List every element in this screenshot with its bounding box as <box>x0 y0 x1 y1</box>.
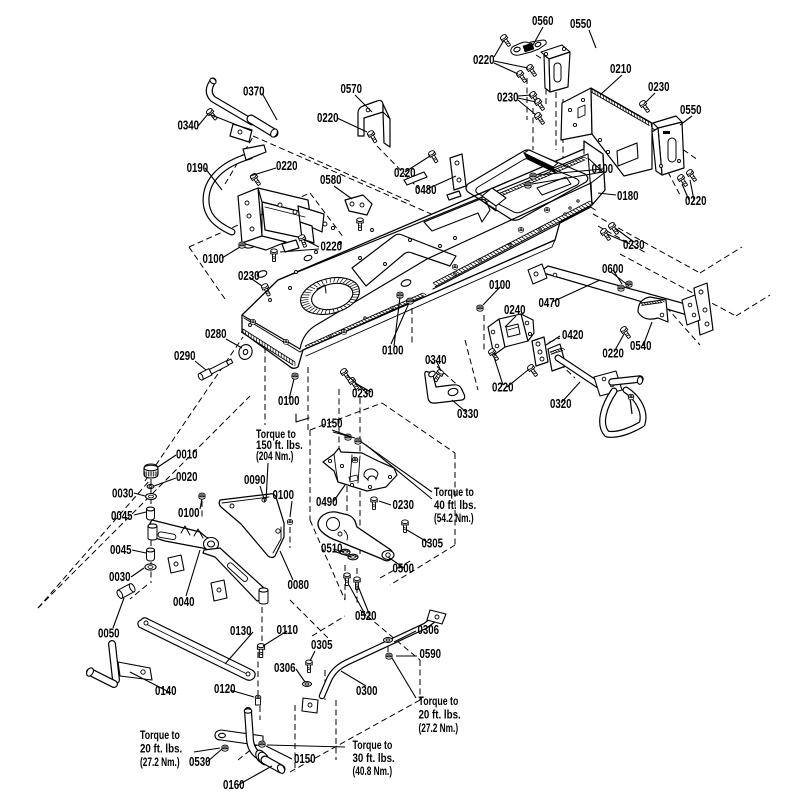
svg-text:0290: 0290 <box>174 348 196 363</box>
svg-text:30 ft. lbs.: 30 ft. lbs. <box>353 751 395 765</box>
svg-text:0220: 0220 <box>473 52 495 67</box>
svg-text:0150: 0150 <box>294 751 316 766</box>
svg-text:0080: 0080 <box>288 577 310 592</box>
svg-text:0306: 0306 <box>418 622 440 637</box>
svg-text:0330: 0330 <box>457 406 479 421</box>
svg-text:0510: 0510 <box>321 541 343 556</box>
svg-text:Torque to: Torque to <box>353 738 393 752</box>
svg-text:0300: 0300 <box>356 683 378 698</box>
svg-text:(204 Nm.): (204 Nm.) <box>256 449 293 463</box>
svg-text:(54.2 Nm.): (54.2 Nm.) <box>434 511 474 525</box>
svg-text:0340: 0340 <box>425 352 447 367</box>
svg-text:0220: 0220 <box>602 346 624 361</box>
svg-text:0520: 0520 <box>355 608 377 623</box>
svg-text:0100: 0100 <box>203 251 225 266</box>
svg-text:0230: 0230 <box>238 268 260 283</box>
svg-text:0020: 0020 <box>176 469 198 484</box>
svg-text:0100: 0100 <box>178 505 200 520</box>
svg-text:(27.2 Nm.): (27.2 Nm.) <box>419 721 459 735</box>
svg-text:0550: 0550 <box>680 102 702 117</box>
svg-text:0230: 0230 <box>648 79 670 94</box>
svg-text:0010: 0010 <box>176 447 198 462</box>
svg-text:0050: 0050 <box>98 626 120 641</box>
svg-text:0100: 0100 <box>592 161 614 176</box>
svg-text:0220: 0220 <box>276 158 298 173</box>
svg-text:0100: 0100 <box>489 277 511 292</box>
svg-text:Torque to: Torque to <box>434 485 474 499</box>
svg-text:0160: 0160 <box>223 777 245 792</box>
svg-text:0230: 0230 <box>393 497 415 512</box>
svg-text:0230: 0230 <box>352 386 374 401</box>
svg-text:0220: 0220 <box>321 239 343 254</box>
svg-text:0480: 0480 <box>415 182 437 197</box>
svg-text:Torque to: Torque to <box>419 694 459 708</box>
svg-text:0280: 0280 <box>205 326 227 341</box>
svg-text:0540: 0540 <box>630 338 652 353</box>
svg-text:20 ft. lbs.: 20 ft. lbs. <box>419 708 461 722</box>
svg-text:0110: 0110 <box>277 622 299 637</box>
svg-text:0420: 0420 <box>562 327 584 342</box>
svg-text:0100: 0100 <box>278 393 300 408</box>
svg-text:0340: 0340 <box>178 118 200 133</box>
svg-text:0180: 0180 <box>617 188 639 203</box>
svg-text:0306: 0306 <box>274 660 296 675</box>
svg-text:0240: 0240 <box>504 302 526 317</box>
svg-text:0580: 0580 <box>320 172 342 187</box>
svg-text:40 ft. lbs.: 40 ft. lbs. <box>434 498 476 512</box>
svg-text:0320: 0320 <box>550 396 572 411</box>
svg-text:0500: 0500 <box>393 561 415 576</box>
svg-text:0100: 0100 <box>382 343 404 358</box>
svg-text:0045: 0045 <box>111 508 133 523</box>
svg-text:0040: 0040 <box>173 594 195 609</box>
svg-text:0230: 0230 <box>497 90 519 105</box>
svg-text:0150: 0150 <box>321 416 343 431</box>
svg-text:0045: 0045 <box>110 542 132 557</box>
svg-text:0470: 0470 <box>539 295 561 310</box>
svg-text:0230: 0230 <box>623 237 645 252</box>
svg-text:(40.8 Nm.): (40.8 Nm.) <box>353 764 393 778</box>
svg-text:0305: 0305 <box>422 536 444 551</box>
svg-text:0570: 0570 <box>341 81 363 96</box>
svg-text:0030: 0030 <box>112 486 134 501</box>
svg-text:0590: 0590 <box>420 646 442 661</box>
svg-text:0210: 0210 <box>610 61 632 76</box>
svg-text:0530: 0530 <box>189 754 211 769</box>
svg-text:0130: 0130 <box>230 623 252 638</box>
svg-text:0600: 0600 <box>602 261 624 276</box>
svg-text:0370: 0370 <box>243 84 265 99</box>
svg-text:0100: 0100 <box>273 487 295 502</box>
svg-text:0190: 0190 <box>187 160 209 175</box>
svg-text:0220: 0220 <box>685 193 707 208</box>
svg-text:Torque to: Torque to <box>140 728 180 742</box>
svg-text:0030: 0030 <box>109 569 131 584</box>
svg-text:0220: 0220 <box>492 380 514 395</box>
svg-text:0560: 0560 <box>532 13 554 28</box>
svg-text:0220: 0220 <box>317 110 339 125</box>
svg-text:0305: 0305 <box>311 637 333 652</box>
svg-text:0090: 0090 <box>244 472 266 487</box>
svg-text:0220: 0220 <box>394 165 416 180</box>
svg-text:0140: 0140 <box>155 683 177 698</box>
svg-text:0120: 0120 <box>214 681 236 696</box>
svg-text:(27.2 Nm.): (27.2 Nm.) <box>140 755 180 769</box>
svg-text:0490: 0490 <box>316 494 338 509</box>
svg-text:0550: 0550 <box>570 16 592 31</box>
svg-text:20 ft. lbs.: 20 ft. lbs. <box>140 742 182 756</box>
